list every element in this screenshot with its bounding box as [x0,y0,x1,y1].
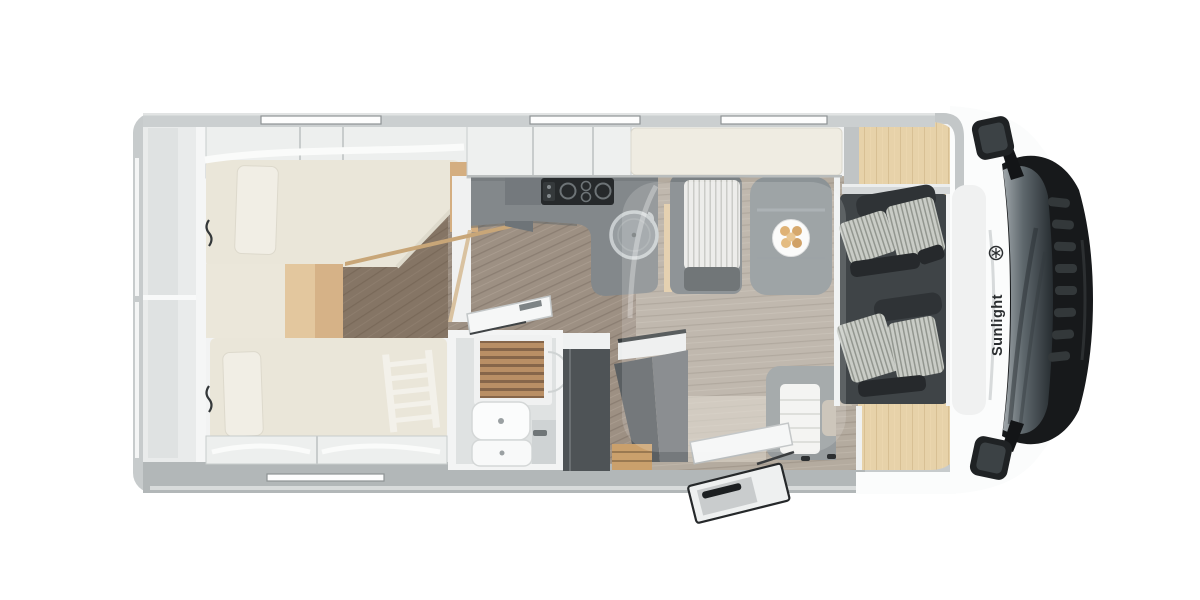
svg-text:Sunlight: Sunlight [990,294,1006,356]
